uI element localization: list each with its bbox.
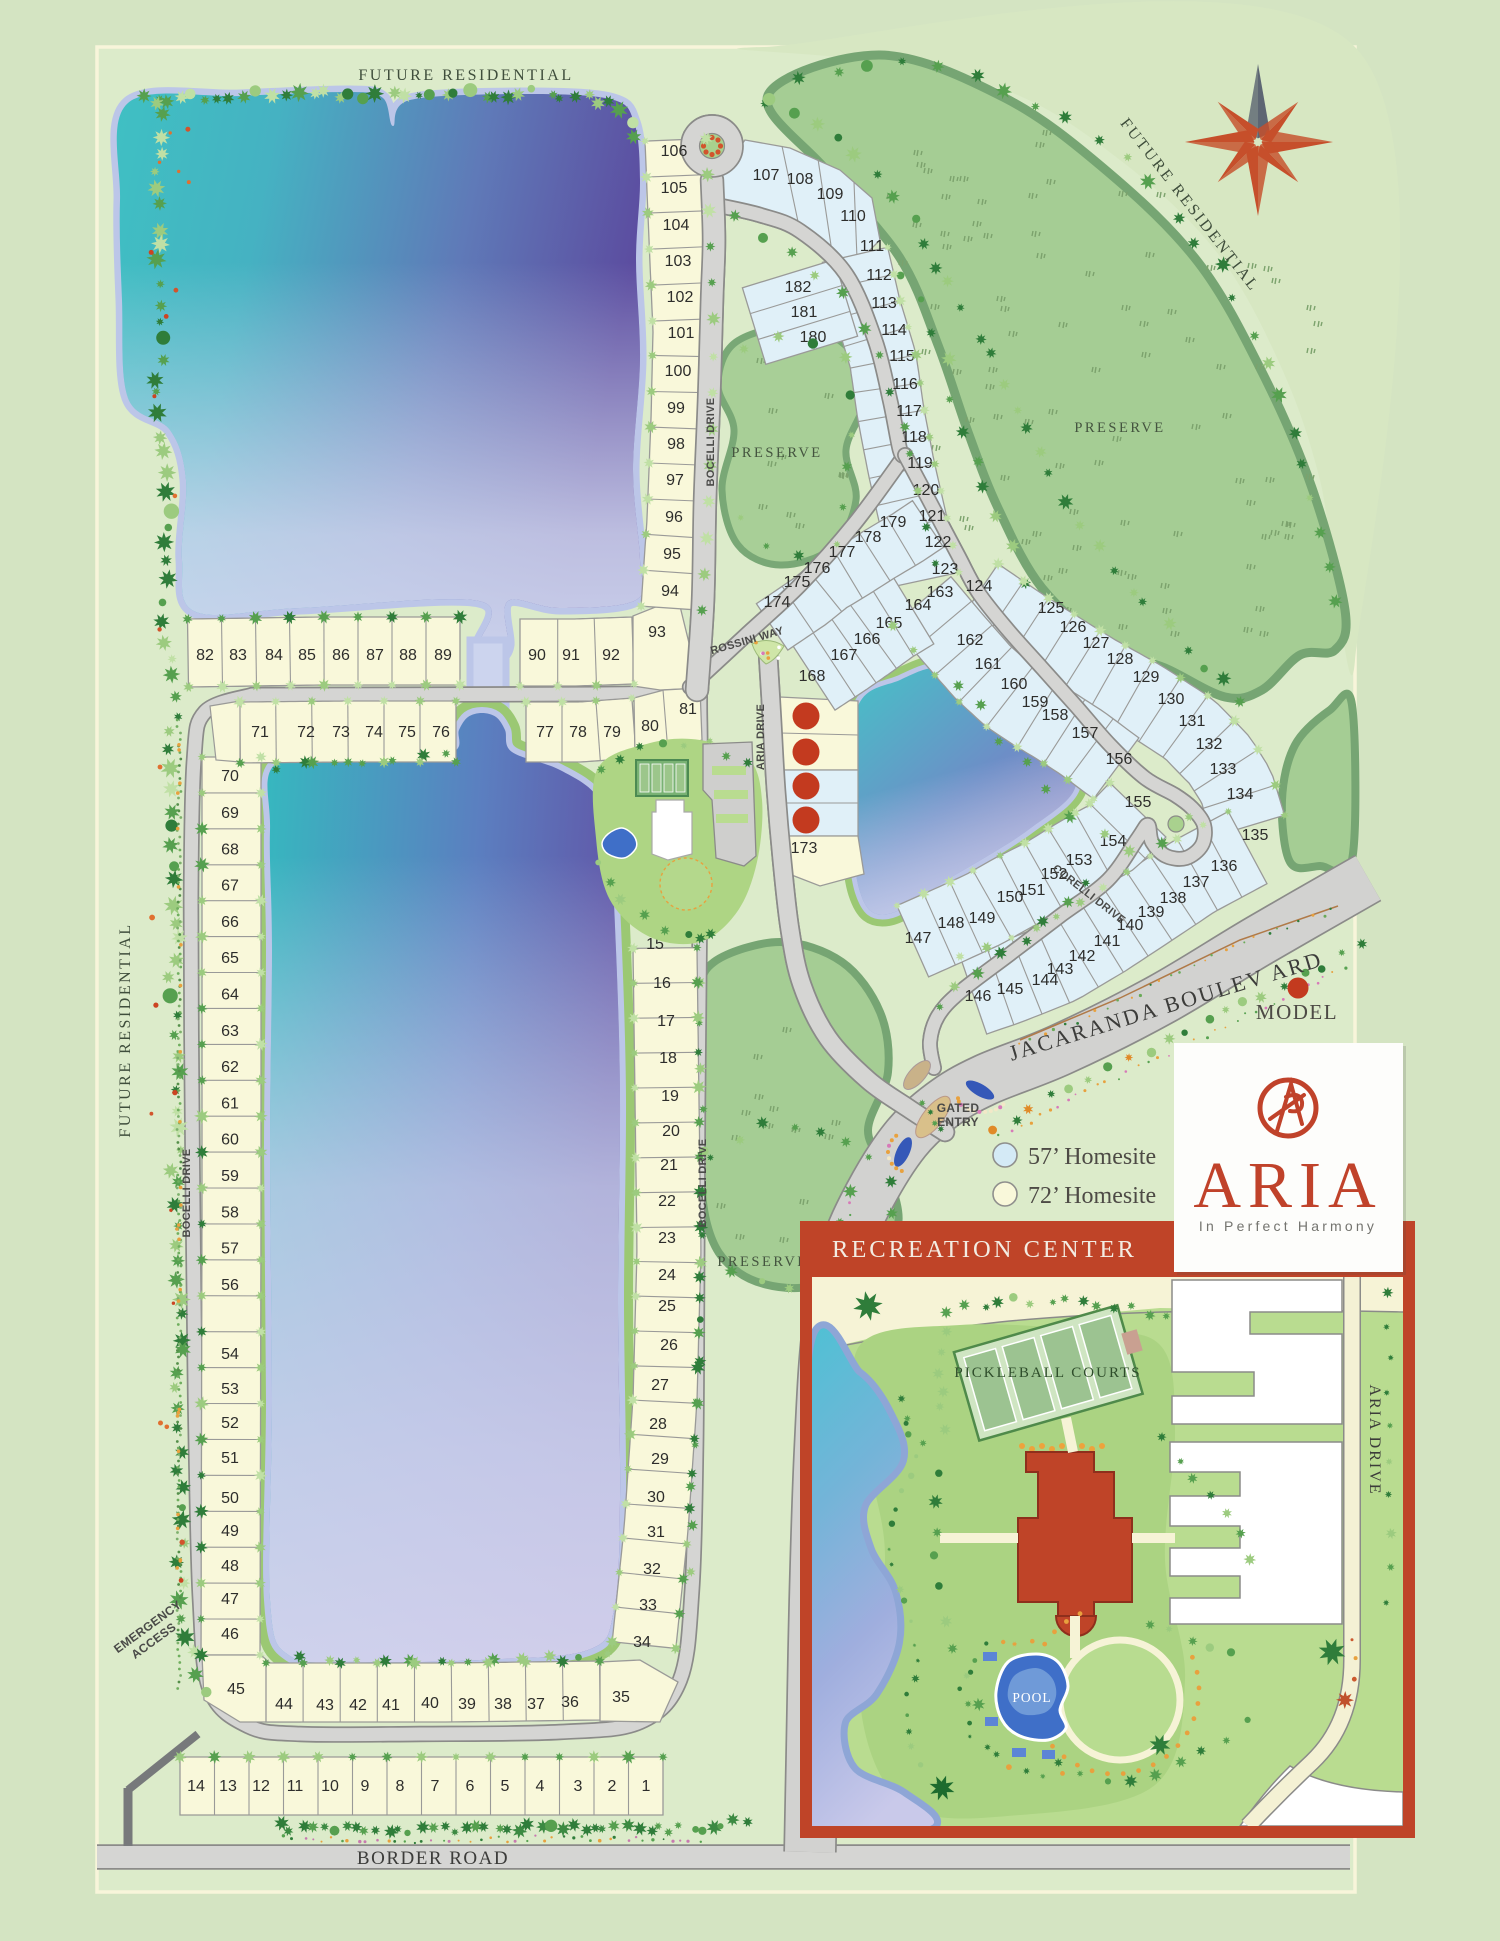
svg-text:6: 6 <box>466 1778 475 1795</box>
svg-text:4: 4 <box>536 1778 545 1795</box>
svg-text:179: 179 <box>880 514 907 531</box>
svg-text:109: 109 <box>817 186 844 203</box>
svg-text:5: 5 <box>501 1778 510 1795</box>
svg-text:ARIA DRIVE: ARIA DRIVE <box>755 704 767 770</box>
svg-text:113: 113 <box>871 295 897 312</box>
svg-text:2: 2 <box>608 1778 617 1795</box>
svg-text:73: 73 <box>332 724 350 741</box>
svg-text:181: 181 <box>791 304 818 321</box>
svg-text:22: 22 <box>658 1193 676 1210</box>
svg-text:103: 103 <box>665 253 692 270</box>
svg-text:41: 41 <box>382 1697 400 1714</box>
svg-text:BORDER ROAD: BORDER ROAD <box>357 1848 509 1869</box>
svg-text:19: 19 <box>661 1088 679 1105</box>
svg-text:99: 99 <box>667 400 685 417</box>
svg-text:121: 121 <box>919 508 946 525</box>
svg-text:37: 37 <box>527 1696 545 1713</box>
svg-text:57’ Homesite: 57’ Homesite <box>1028 1144 1156 1170</box>
svg-text:112: 112 <box>866 267 892 284</box>
svg-text:38: 38 <box>494 1696 512 1713</box>
svg-text:107: 107 <box>753 167 780 184</box>
svg-text:162: 162 <box>957 632 984 649</box>
svg-text:27: 27 <box>651 1377 669 1394</box>
svg-text:49: 49 <box>221 1523 239 1540</box>
svg-text:125: 125 <box>1038 600 1065 617</box>
svg-text:FUTURE RESIDENTIAL: FUTURE RESIDENTIAL <box>358 67 573 84</box>
svg-text:7: 7 <box>431 1778 440 1795</box>
svg-text:26: 26 <box>660 1337 678 1354</box>
svg-text:30: 30 <box>647 1489 665 1506</box>
svg-text:93: 93 <box>648 624 666 641</box>
svg-text:47: 47 <box>221 1591 239 1608</box>
svg-text:42: 42 <box>349 1697 367 1714</box>
svg-text:62: 62 <box>221 1059 239 1076</box>
svg-text:32: 32 <box>643 1561 661 1578</box>
svg-text:87: 87 <box>366 647 384 664</box>
svg-text:86: 86 <box>332 647 350 664</box>
svg-text:127: 127 <box>1083 635 1110 652</box>
svg-text:82: 82 <box>196 647 214 664</box>
svg-text:156: 156 <box>1106 751 1133 768</box>
svg-text:147: 147 <box>905 930 932 947</box>
svg-text:115: 115 <box>889 348 915 365</box>
svg-text:20: 20 <box>662 1123 680 1140</box>
svg-text:63: 63 <box>221 1023 239 1040</box>
svg-text:165: 165 <box>876 615 903 632</box>
svg-text:74: 74 <box>365 724 383 741</box>
svg-text:PRESERVE: PRESERVE <box>717 1254 808 1270</box>
svg-text:39: 39 <box>458 1696 476 1713</box>
svg-text:17: 17 <box>657 1013 675 1030</box>
svg-text:72: 72 <box>297 724 315 741</box>
svg-text:PRESERVE: PRESERVE <box>1074 420 1165 436</box>
svg-text:122: 122 <box>925 534 952 551</box>
svg-text:78: 78 <box>569 724 587 741</box>
svg-text:58: 58 <box>221 1204 239 1221</box>
svg-text:102: 102 <box>667 289 694 306</box>
svg-text:72’ Homesite: 72’ Homesite <box>1028 1183 1156 1209</box>
svg-text:160: 160 <box>1001 676 1028 693</box>
svg-text:12: 12 <box>252 1778 270 1795</box>
svg-text:57: 57 <box>221 1241 239 1258</box>
svg-text:43: 43 <box>316 1697 334 1714</box>
svg-text:RECREATION CENTER: RECREATION CENTER <box>832 1236 1137 1263</box>
svg-text:132: 132 <box>1196 736 1223 753</box>
svg-text:167: 167 <box>831 647 858 664</box>
svg-text:83: 83 <box>229 647 247 664</box>
svg-text:133: 133 <box>1210 761 1237 778</box>
svg-text:145: 145 <box>997 981 1024 998</box>
svg-text:151: 151 <box>1019 882 1046 899</box>
svg-text:84: 84 <box>265 647 283 664</box>
svg-text:44: 44 <box>275 1696 293 1713</box>
svg-text:182: 182 <box>785 279 812 296</box>
svg-text:66: 66 <box>221 914 239 931</box>
svg-text:159: 159 <box>1022 694 1049 711</box>
svg-text:48: 48 <box>221 1558 239 1575</box>
svg-text:13: 13 <box>219 1778 237 1795</box>
svg-text:155: 155 <box>1125 794 1152 811</box>
svg-text:129: 129 <box>1133 669 1160 686</box>
svg-text:70: 70 <box>221 768 239 785</box>
svg-text:92: 92 <box>602 647 620 664</box>
svg-text:174: 174 <box>764 594 791 611</box>
svg-text:76: 76 <box>432 724 450 741</box>
svg-text:54: 54 <box>221 1346 239 1363</box>
svg-text:FUTURE RESIDENTIAL: FUTURE RESIDENTIAL <box>117 922 134 1137</box>
svg-text:96: 96 <box>665 509 683 526</box>
svg-text:105: 105 <box>661 180 688 197</box>
svg-text:153: 153 <box>1066 852 1093 869</box>
svg-text:136: 136 <box>1211 858 1238 875</box>
svg-text:97: 97 <box>666 472 684 489</box>
svg-text:59: 59 <box>221 1168 239 1185</box>
svg-text:In Perfect Harmony: In Perfect Harmony <box>1199 1218 1377 1234</box>
svg-text:PICKLEBALL COURTS: PICKLEBALL COURTS <box>954 1365 1141 1381</box>
svg-text:157: 157 <box>1072 725 1099 742</box>
svg-text:164: 164 <box>905 597 932 614</box>
svg-text:16: 16 <box>653 975 671 992</box>
svg-text:119: 119 <box>907 455 933 472</box>
svg-text:117: 117 <box>896 403 922 420</box>
svg-text:69: 69 <box>221 805 239 822</box>
svg-text:144: 144 <box>1032 972 1059 989</box>
svg-text:18: 18 <box>659 1050 677 1067</box>
svg-text:64: 64 <box>221 987 239 1004</box>
svg-text:116: 116 <box>892 376 918 393</box>
svg-text:149: 149 <box>969 910 996 927</box>
svg-text:24: 24 <box>658 1267 676 1284</box>
svg-text:BOCELLI DRIVE: BOCELLI DRIVE <box>697 1139 709 1228</box>
svg-text:40: 40 <box>421 1695 439 1712</box>
svg-text:75: 75 <box>398 724 416 741</box>
svg-text:106: 106 <box>661 143 688 160</box>
svg-text:ARIA DRIVE: ARIA DRIVE <box>1366 1384 1383 1495</box>
svg-text:178: 178 <box>855 529 882 546</box>
svg-text:130: 130 <box>1158 691 1185 708</box>
svg-text:60: 60 <box>221 1132 239 1149</box>
svg-text:108: 108 <box>787 171 814 188</box>
svg-text:95: 95 <box>663 546 681 563</box>
svg-text:28: 28 <box>649 1416 667 1433</box>
svg-text:POOL: POOL <box>1012 1690 1051 1705</box>
svg-text:25: 25 <box>658 1298 676 1315</box>
svg-text:77: 77 <box>536 724 554 741</box>
svg-text:90: 90 <box>528 647 546 664</box>
svg-text:21: 21 <box>660 1157 678 1174</box>
svg-text:71: 71 <box>251 724 269 741</box>
svg-text:3: 3 <box>574 1778 583 1795</box>
svg-text:68: 68 <box>221 841 239 858</box>
svg-text:65: 65 <box>221 950 239 967</box>
svg-text:52: 52 <box>221 1415 239 1432</box>
svg-text:GATEDENTRY: GATEDENTRY <box>937 1101 980 1129</box>
svg-text:56: 56 <box>221 1277 239 1294</box>
svg-text:29: 29 <box>651 1451 669 1468</box>
svg-text:34: 34 <box>633 1634 651 1651</box>
svg-text:80: 80 <box>641 718 659 735</box>
svg-text:98: 98 <box>667 436 685 453</box>
svg-text:118: 118 <box>901 429 927 446</box>
svg-text:137: 137 <box>1183 874 1210 891</box>
svg-text:176: 176 <box>804 560 831 577</box>
svg-text:161: 161 <box>975 656 1002 673</box>
svg-text:124: 124 <box>966 578 993 595</box>
svg-text:BOCELLI DRIVE: BOCELLI DRIVE <box>705 398 717 487</box>
svg-text:135: 135 <box>1242 827 1269 844</box>
svg-text:36: 36 <box>561 1694 579 1711</box>
svg-text:104: 104 <box>663 217 690 234</box>
svg-text:101: 101 <box>668 325 695 342</box>
svg-text:100: 100 <box>665 363 692 380</box>
svg-text:173: 173 <box>791 840 818 857</box>
svg-text:PRESERVE: PRESERVE <box>731 445 822 461</box>
svg-text:177: 177 <box>829 544 856 561</box>
svg-text:114: 114 <box>881 322 907 339</box>
svg-text:BOCELLI DRIVE: BOCELLI DRIVE <box>181 1149 193 1238</box>
svg-text:111: 111 <box>860 238 884 255</box>
svg-text:31: 31 <box>647 1524 665 1541</box>
svg-text:141: 141 <box>1094 933 1121 950</box>
svg-text:79: 79 <box>603 724 621 741</box>
svg-text:91: 91 <box>562 647 580 664</box>
svg-text:35: 35 <box>612 1689 630 1706</box>
svg-text:53: 53 <box>221 1381 239 1398</box>
svg-text:MODEL: MODEL <box>1256 1000 1338 1024</box>
svg-text:148: 148 <box>938 915 965 932</box>
svg-text:8: 8 <box>396 1778 405 1795</box>
svg-text:89: 89 <box>434 647 452 664</box>
svg-text:126: 126 <box>1060 619 1087 636</box>
svg-text:ARIA: ARIA <box>1193 1149 1382 1222</box>
svg-text:81: 81 <box>679 701 697 718</box>
svg-text:9: 9 <box>361 1778 370 1795</box>
svg-text:33: 33 <box>639 1597 657 1614</box>
svg-text:11: 11 <box>287 1778 304 1795</box>
svg-text:128: 128 <box>1107 651 1134 668</box>
svg-text:134: 134 <box>1227 786 1254 803</box>
svg-text:51: 51 <box>221 1450 239 1467</box>
svg-text:61: 61 <box>221 1095 239 1112</box>
svg-text:1: 1 <box>642 1778 651 1795</box>
svg-text:94: 94 <box>661 583 679 600</box>
svg-text:10: 10 <box>321 1778 339 1795</box>
svg-text:23: 23 <box>658 1230 676 1247</box>
svg-text:110: 110 <box>840 208 866 225</box>
svg-text:85: 85 <box>298 647 316 664</box>
svg-text:50: 50 <box>221 1490 239 1507</box>
svg-text:45: 45 <box>227 1681 245 1698</box>
svg-text:88: 88 <box>399 647 417 664</box>
svg-text:131: 131 <box>1179 713 1206 730</box>
svg-text:67: 67 <box>221 878 239 895</box>
svg-text:166: 166 <box>854 631 881 648</box>
svg-text:46: 46 <box>221 1626 239 1643</box>
svg-text:146: 146 <box>965 988 992 1005</box>
svg-text:14: 14 <box>187 1778 205 1795</box>
svg-text:168: 168 <box>799 668 826 685</box>
